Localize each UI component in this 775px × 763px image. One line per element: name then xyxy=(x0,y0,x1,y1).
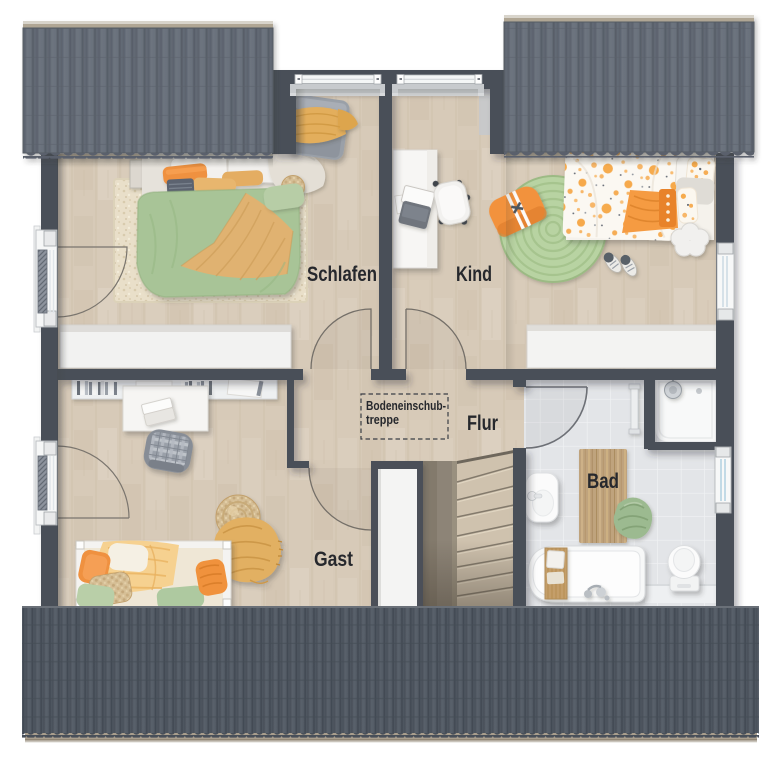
svg-text:Kind: Kind xyxy=(456,263,492,286)
svg-text:Flur: Flur xyxy=(467,412,498,435)
svg-text:Bodeneinschub-: Bodeneinschub- xyxy=(366,398,446,413)
svg-text:Gast: Gast xyxy=(314,548,353,571)
svg-text:Schlafen: Schlafen xyxy=(307,263,377,286)
svg-text:Bad: Bad xyxy=(587,470,619,493)
svg-text:treppe: treppe xyxy=(366,412,399,427)
